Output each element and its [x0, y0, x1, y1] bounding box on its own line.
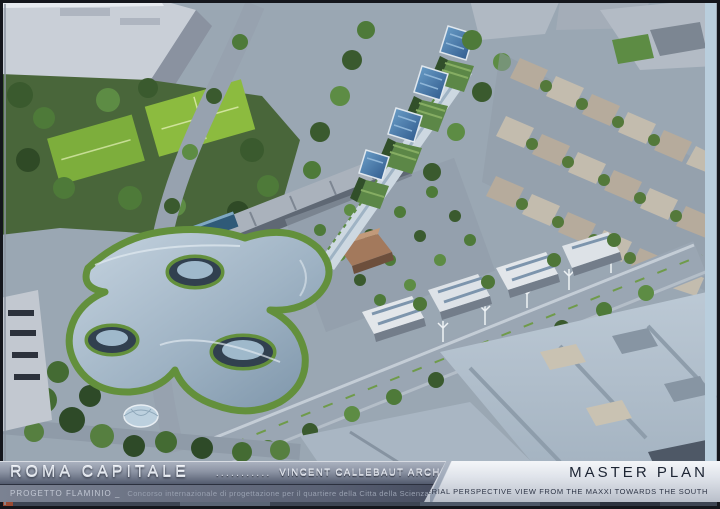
competition-subtitle: Concorso internazionale di progettazione…: [127, 489, 429, 498]
title-banner: ROMA CAPITALE ........... VINCENT CALLEB…: [0, 461, 720, 502]
plan-title: MASTER PLAN: [569, 464, 708, 481]
project-city-title: ROMA CAPITALE: [10, 464, 190, 482]
right-edge-strip: [705, 0, 716, 509]
master-plan-panel: MASTER PLAN AERIAL PERSPECTIVE VIEW FROM…: [424, 461, 720, 502]
title-separator-dots: ...........: [216, 467, 272, 479]
sinuous-building: [69, 230, 329, 411]
presentation-board: ROMA CAPITALE ........... VINCENT CALLEB…: [0, 0, 720, 509]
plan-caption: AERIAL PERSPECTIVE VIEW FROM THE MAXXI T…: [420, 487, 708, 496]
glass-dome: [124, 405, 158, 427]
project-name-label: PROGETTO FLAMINIO _: [10, 489, 120, 498]
aerial-rendering: [0, 0, 720, 509]
